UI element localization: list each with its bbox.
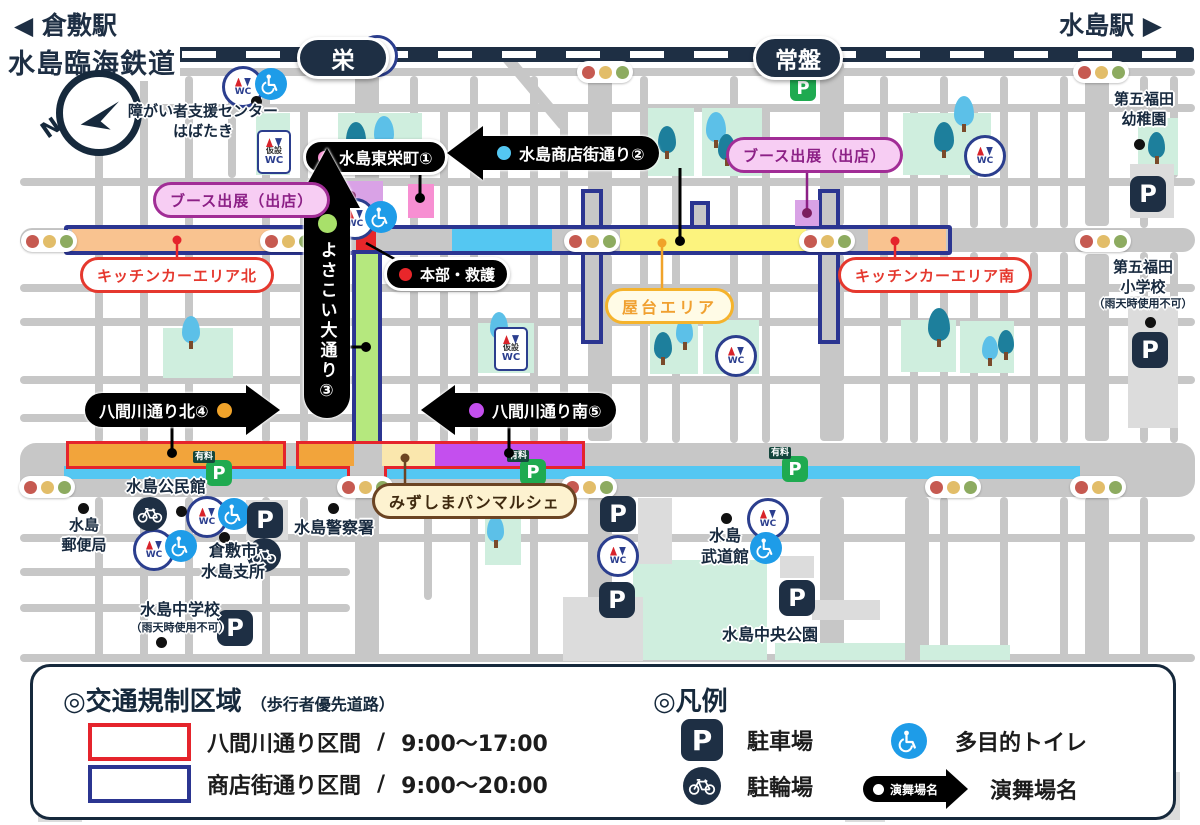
traffic-light-lamp xyxy=(838,235,851,248)
traffic-light-lamp xyxy=(586,235,599,248)
paid-parking-icon: P有料 xyxy=(782,456,808,482)
traffic-light-icon xyxy=(925,476,981,498)
festival-area-map: WCWCWCWCWCWCWCWCWC仮設WC仮設WCPPPPPPPP有料P有料P… xyxy=(0,0,1200,825)
venue-label-honbu-text: 本部・救護 xyxy=(420,264,495,285)
street-segment xyxy=(940,497,948,658)
white-dot xyxy=(873,784,884,795)
tree-crown xyxy=(934,122,954,152)
tree-trunk xyxy=(1155,156,1159,164)
side-street-outlined xyxy=(818,189,840,230)
male-figure xyxy=(769,510,776,519)
traffic-light-lamp xyxy=(582,66,595,79)
side-street-outlined xyxy=(818,250,840,344)
traffic-light-lamp xyxy=(1080,235,1093,248)
parking-icon: P xyxy=(599,582,635,618)
traffic-light-lamp xyxy=(359,481,372,494)
traffic-light-lamp xyxy=(41,481,54,494)
paid-tag: 有料 xyxy=(507,450,529,462)
arrow-left-icon xyxy=(447,126,483,180)
blue-dot xyxy=(497,146,511,160)
traffic-light-lamp xyxy=(1092,481,1105,494)
building-block xyxy=(812,600,880,620)
paid-tag: 有料 xyxy=(769,447,791,459)
wc-label: WC xyxy=(265,156,283,166)
marche-zone xyxy=(382,444,435,466)
parking-icon: P xyxy=(779,580,815,616)
street-segment xyxy=(470,497,478,658)
tree-trunk xyxy=(189,341,193,349)
traffic-light-icon xyxy=(21,230,77,252)
area-label-booth-left: ブース出展（出店） xyxy=(153,182,330,218)
red-dot xyxy=(399,268,412,281)
female-figure xyxy=(199,508,206,517)
traffic-light-lamp xyxy=(1112,66,1125,79)
female-figure xyxy=(503,335,510,344)
temporary-wc-icon: 仮設WC xyxy=(494,327,528,371)
tree-trunk xyxy=(683,342,687,350)
tree-crown xyxy=(182,316,200,343)
hachimagawa-north-regulation xyxy=(66,441,286,469)
place-shien-center: 障がい者支援センター はばたき xyxy=(108,102,298,141)
legend-row-hachimagawa: 八間川通り区間 / 9:00～17:00 xyxy=(88,723,548,761)
tree-trunk xyxy=(937,339,941,347)
wc-label: WC xyxy=(610,557,627,566)
tree-trunk xyxy=(962,124,966,132)
arrow-left-icon xyxy=(421,385,455,435)
tree-icon xyxy=(954,96,974,132)
street-segment xyxy=(530,497,538,658)
area-label-kitchen-north: キッチンカーエリア北 xyxy=(80,257,274,293)
place-chugakko: 水島中学校 （雨天時使用不可） xyxy=(110,600,250,635)
accessible-toilet-icon xyxy=(891,723,927,759)
side-street-outlined xyxy=(581,189,603,230)
traffic-light-lamp xyxy=(1097,235,1110,248)
tree-trunk xyxy=(494,540,498,548)
traffic-light-lamp xyxy=(947,481,960,494)
street-segment xyxy=(1000,497,1008,658)
place-shisho: 倉敷市 水島支所 xyxy=(190,541,276,583)
wc-figures xyxy=(199,508,215,517)
legend-row-shotengai: 商店街通り区間 / 9:00～20:00 xyxy=(88,765,548,803)
direction-kurashiki: ◀ 倉敷駅 xyxy=(14,6,117,42)
purple-dot xyxy=(469,403,484,418)
legend-row-bicycle: 駐輪場 xyxy=(683,767,813,805)
street-segment xyxy=(1060,252,1068,443)
legend-row-venue: 演舞場名 演舞場名 xyxy=(863,769,1078,809)
traffic-light-lamp xyxy=(342,481,355,494)
paid-parking-icon: P有料 xyxy=(520,459,546,485)
green-dot xyxy=(318,214,337,233)
traffic-light-icon xyxy=(799,230,855,252)
building-block xyxy=(638,498,672,564)
tree-trunk xyxy=(942,150,946,158)
wc-label: WC xyxy=(502,353,520,363)
location-dot xyxy=(78,503,89,514)
wc-figures xyxy=(760,510,776,519)
legend-hanrei-title: ◎凡例 xyxy=(653,681,728,718)
venue-label-hachimagawa-south-text: 八間川通り南⑤ xyxy=(492,398,602,422)
legend-row-parking: P 駐車場 xyxy=(681,719,813,761)
traffic-light-lamp xyxy=(964,481,977,494)
place-kominkan: 水島公民館 xyxy=(126,477,206,498)
legend-panel: ◎交通規制区域 （歩行者優先道路） 八間川通り区間 / 9:00～17:00 商… xyxy=(30,664,1176,820)
bicycle-parking-icon xyxy=(133,497,167,531)
parking-icon: P xyxy=(681,719,723,761)
arrow-right-icon xyxy=(246,385,280,435)
tree-icon xyxy=(487,516,504,548)
traffic-light-lamp xyxy=(599,66,612,79)
wc-figures xyxy=(146,541,162,550)
male-figure xyxy=(619,547,626,556)
area-label-pan-marche: みずしまパンマルシェ xyxy=(372,483,577,519)
street-main-segment xyxy=(905,497,929,660)
direction-mizushima: 水島駅 ▶ xyxy=(1059,6,1162,42)
tree-crown xyxy=(954,96,974,126)
street-main-segment xyxy=(820,497,844,660)
orange-dot xyxy=(217,403,232,418)
traffic-light-lamp xyxy=(821,235,834,248)
park-block xyxy=(920,645,1010,660)
paid-tag: 有料 xyxy=(193,451,215,463)
street-main-segment xyxy=(1085,497,1109,660)
traffic-light-lamp xyxy=(24,481,37,494)
wc-label: WC xyxy=(760,520,777,529)
female-figure xyxy=(977,147,984,156)
tree-crown xyxy=(487,516,504,542)
traffic-light-lamp xyxy=(58,481,71,494)
traffic-light-lamp xyxy=(600,481,613,494)
tree-icon xyxy=(934,122,954,158)
wc-icon: WC xyxy=(964,135,1006,177)
place-post-office: 水島 郵便局 xyxy=(46,516,122,555)
legend-row-toilet: 多目的トイレ xyxy=(891,723,1087,759)
venue-label-hachimagawa-north: 八間川通り北④ xyxy=(85,385,280,435)
street-segment xyxy=(1030,104,1038,228)
male-figure xyxy=(986,147,993,156)
female-figure xyxy=(146,541,153,550)
street-segment xyxy=(640,252,648,443)
wc-icon: WC xyxy=(715,335,757,377)
female-figure xyxy=(760,510,767,519)
kitchen-car-area-south-zone xyxy=(868,229,946,251)
traffic-light-lamp xyxy=(1114,235,1127,248)
traffic-light-icon xyxy=(577,61,633,83)
male-figure xyxy=(208,508,215,517)
side-street-outlined xyxy=(581,250,603,344)
arrow-right-icon xyxy=(946,769,968,809)
traffic-light-icon xyxy=(19,476,75,498)
tree-crown xyxy=(658,126,676,153)
booth-rect xyxy=(408,184,434,218)
traffic-light-icon xyxy=(1070,476,1126,498)
tree-icon xyxy=(182,316,200,349)
tree-trunk xyxy=(665,151,669,159)
traffic-light-lamp xyxy=(1095,66,1108,79)
traffic-light-lamp xyxy=(1078,66,1091,79)
parking-icon: P xyxy=(247,502,283,538)
navy-regulation-swatch xyxy=(88,765,191,803)
place-budokan: 水島 武道館 xyxy=(692,526,758,568)
parking-icon: P xyxy=(1132,332,1168,368)
tree-icon xyxy=(1148,132,1165,164)
area-label-kitchen-south: キッチンカーエリア南 xyxy=(838,257,1032,293)
bicycle-parking-icon xyxy=(683,767,721,805)
male-figure xyxy=(155,541,162,550)
street-segment xyxy=(1140,497,1148,658)
station-sakae-label: 栄 xyxy=(332,41,355,75)
female-figure xyxy=(728,347,735,356)
street-main-segment xyxy=(1085,62,1109,226)
tree-crown xyxy=(1148,132,1165,158)
wc-figures xyxy=(728,347,744,356)
venue-label-shotengai: 水島商店街通り② xyxy=(447,126,659,180)
amber-zone xyxy=(299,444,354,466)
venue-label-shotengai-text: 水島商店街通り② xyxy=(519,141,645,165)
station-tokiwa-label: 常盤 xyxy=(775,41,821,75)
kitchen-car-area-north-zone xyxy=(72,229,270,251)
wc-icon: WC xyxy=(597,535,639,577)
wc-label: WC xyxy=(235,88,252,97)
street-segment xyxy=(1030,252,1038,443)
traffic-light-lamp xyxy=(26,235,39,248)
traffic-light-icon xyxy=(564,230,620,252)
venue-label-honbu: 本部・救護 xyxy=(384,257,510,291)
street-segment xyxy=(140,76,148,228)
wc-label: WC xyxy=(977,157,994,166)
place-chuo-park: 水島中央公園 xyxy=(722,625,818,646)
female-figure xyxy=(235,78,242,87)
shotengai-zone xyxy=(452,229,552,251)
accessible-toilet-icon xyxy=(365,201,397,233)
legend-traffic-title: ◎交通規制区域 （歩行者優先道路） xyxy=(63,681,395,718)
male-figure xyxy=(737,347,744,356)
location-dot xyxy=(1134,139,1145,150)
wc-figures xyxy=(977,147,993,156)
wc-figures xyxy=(610,547,626,556)
street-segment xyxy=(762,252,770,443)
booth-rect xyxy=(795,200,819,226)
parking-icon: P xyxy=(600,496,636,532)
tree-crown xyxy=(982,336,998,360)
wc-label: WC xyxy=(146,551,163,560)
traffic-light-lamp xyxy=(60,235,73,248)
tree-trunk xyxy=(988,358,992,366)
yatai-zone xyxy=(620,229,806,251)
building-block xyxy=(780,556,814,578)
railway-line xyxy=(6,47,1194,62)
location-dot xyxy=(721,513,732,524)
street-segment xyxy=(1060,76,1068,228)
tree-icon xyxy=(928,308,950,347)
tree-crown xyxy=(928,308,950,341)
tree-trunk xyxy=(661,357,665,365)
traffic-light-lamp xyxy=(804,235,817,248)
location-dot xyxy=(1145,317,1156,328)
street-segment xyxy=(1060,497,1068,658)
traffic-light-lamp xyxy=(1109,481,1122,494)
station-tokiwa: 常盤 xyxy=(753,36,843,80)
traffic-light-lamp xyxy=(603,235,616,248)
wc-figures xyxy=(235,78,251,87)
traffic-light-lamp xyxy=(282,235,295,248)
area-label-booth-right: ブース出展（出店） xyxy=(726,137,903,173)
traffic-light-lamp xyxy=(569,235,582,248)
tree-crown xyxy=(998,330,1014,354)
accessible-toilet-icon xyxy=(255,68,287,100)
traffic-light-lamp xyxy=(43,235,56,248)
traffic-light-lamp xyxy=(1075,481,1088,494)
tree-crown xyxy=(654,332,672,359)
place-yochien: 第五福田 幼稚園 xyxy=(1096,90,1192,129)
tree-icon xyxy=(982,336,998,366)
location-dot xyxy=(156,637,167,648)
venue-label-hachimagawa-south: 八間川通り南⑤ xyxy=(421,385,616,435)
accessible-toilet-icon xyxy=(218,498,250,530)
traffic-light-icon xyxy=(1075,230,1131,252)
area-label-yatai: 屋台エリア xyxy=(605,288,734,324)
tree-trunk xyxy=(1004,352,1008,360)
female-figure xyxy=(610,547,617,556)
station-sakae: 栄 xyxy=(297,37,389,79)
traffic-light-lamp xyxy=(265,235,278,248)
male-figure xyxy=(244,78,251,87)
venue-label-hachimagawa-north-text: 八間川通り北④ xyxy=(99,398,209,422)
paid-parking-icon: P有料 xyxy=(206,460,232,486)
traffic-light-icon xyxy=(1073,61,1129,83)
wc-label: WC xyxy=(728,357,745,366)
tree-icon xyxy=(658,126,676,159)
tree-icon xyxy=(998,330,1014,360)
venue-arrow-sample: 演舞場名 xyxy=(863,769,968,809)
tree-icon xyxy=(654,332,672,365)
parking-icon: P xyxy=(1130,176,1166,212)
traffic-light-lamp xyxy=(583,481,596,494)
location-dot xyxy=(176,506,187,517)
wc-label: WC xyxy=(199,518,216,527)
place-shogakko: 第五福田 小学校 （雨天時使用不可） xyxy=(1088,258,1198,311)
traffic-light-lamp xyxy=(616,66,629,79)
place-police: 水島警察署 xyxy=(294,518,374,539)
red-regulation-swatch xyxy=(88,723,191,761)
location-dot xyxy=(328,503,339,514)
traffic-light-lamp xyxy=(930,481,943,494)
venue-label-yosakoi-text: よさこい大通り③ xyxy=(315,241,340,404)
